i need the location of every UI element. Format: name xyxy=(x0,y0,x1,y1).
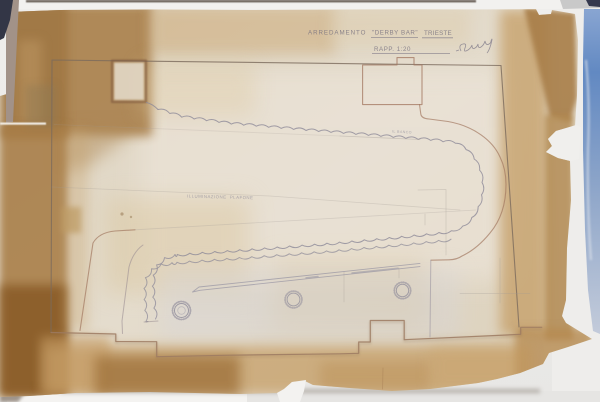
svg-text:ARREDAMENTO: ARREDAMENTO xyxy=(308,30,366,37)
svg-text:RAPP. 1:20: RAPP. 1:20 xyxy=(374,46,411,53)
svg-text:"DERBY BAR": "DERBY BAR" xyxy=(372,30,418,37)
svg-text:TRIESTE: TRIESTE xyxy=(424,30,452,37)
